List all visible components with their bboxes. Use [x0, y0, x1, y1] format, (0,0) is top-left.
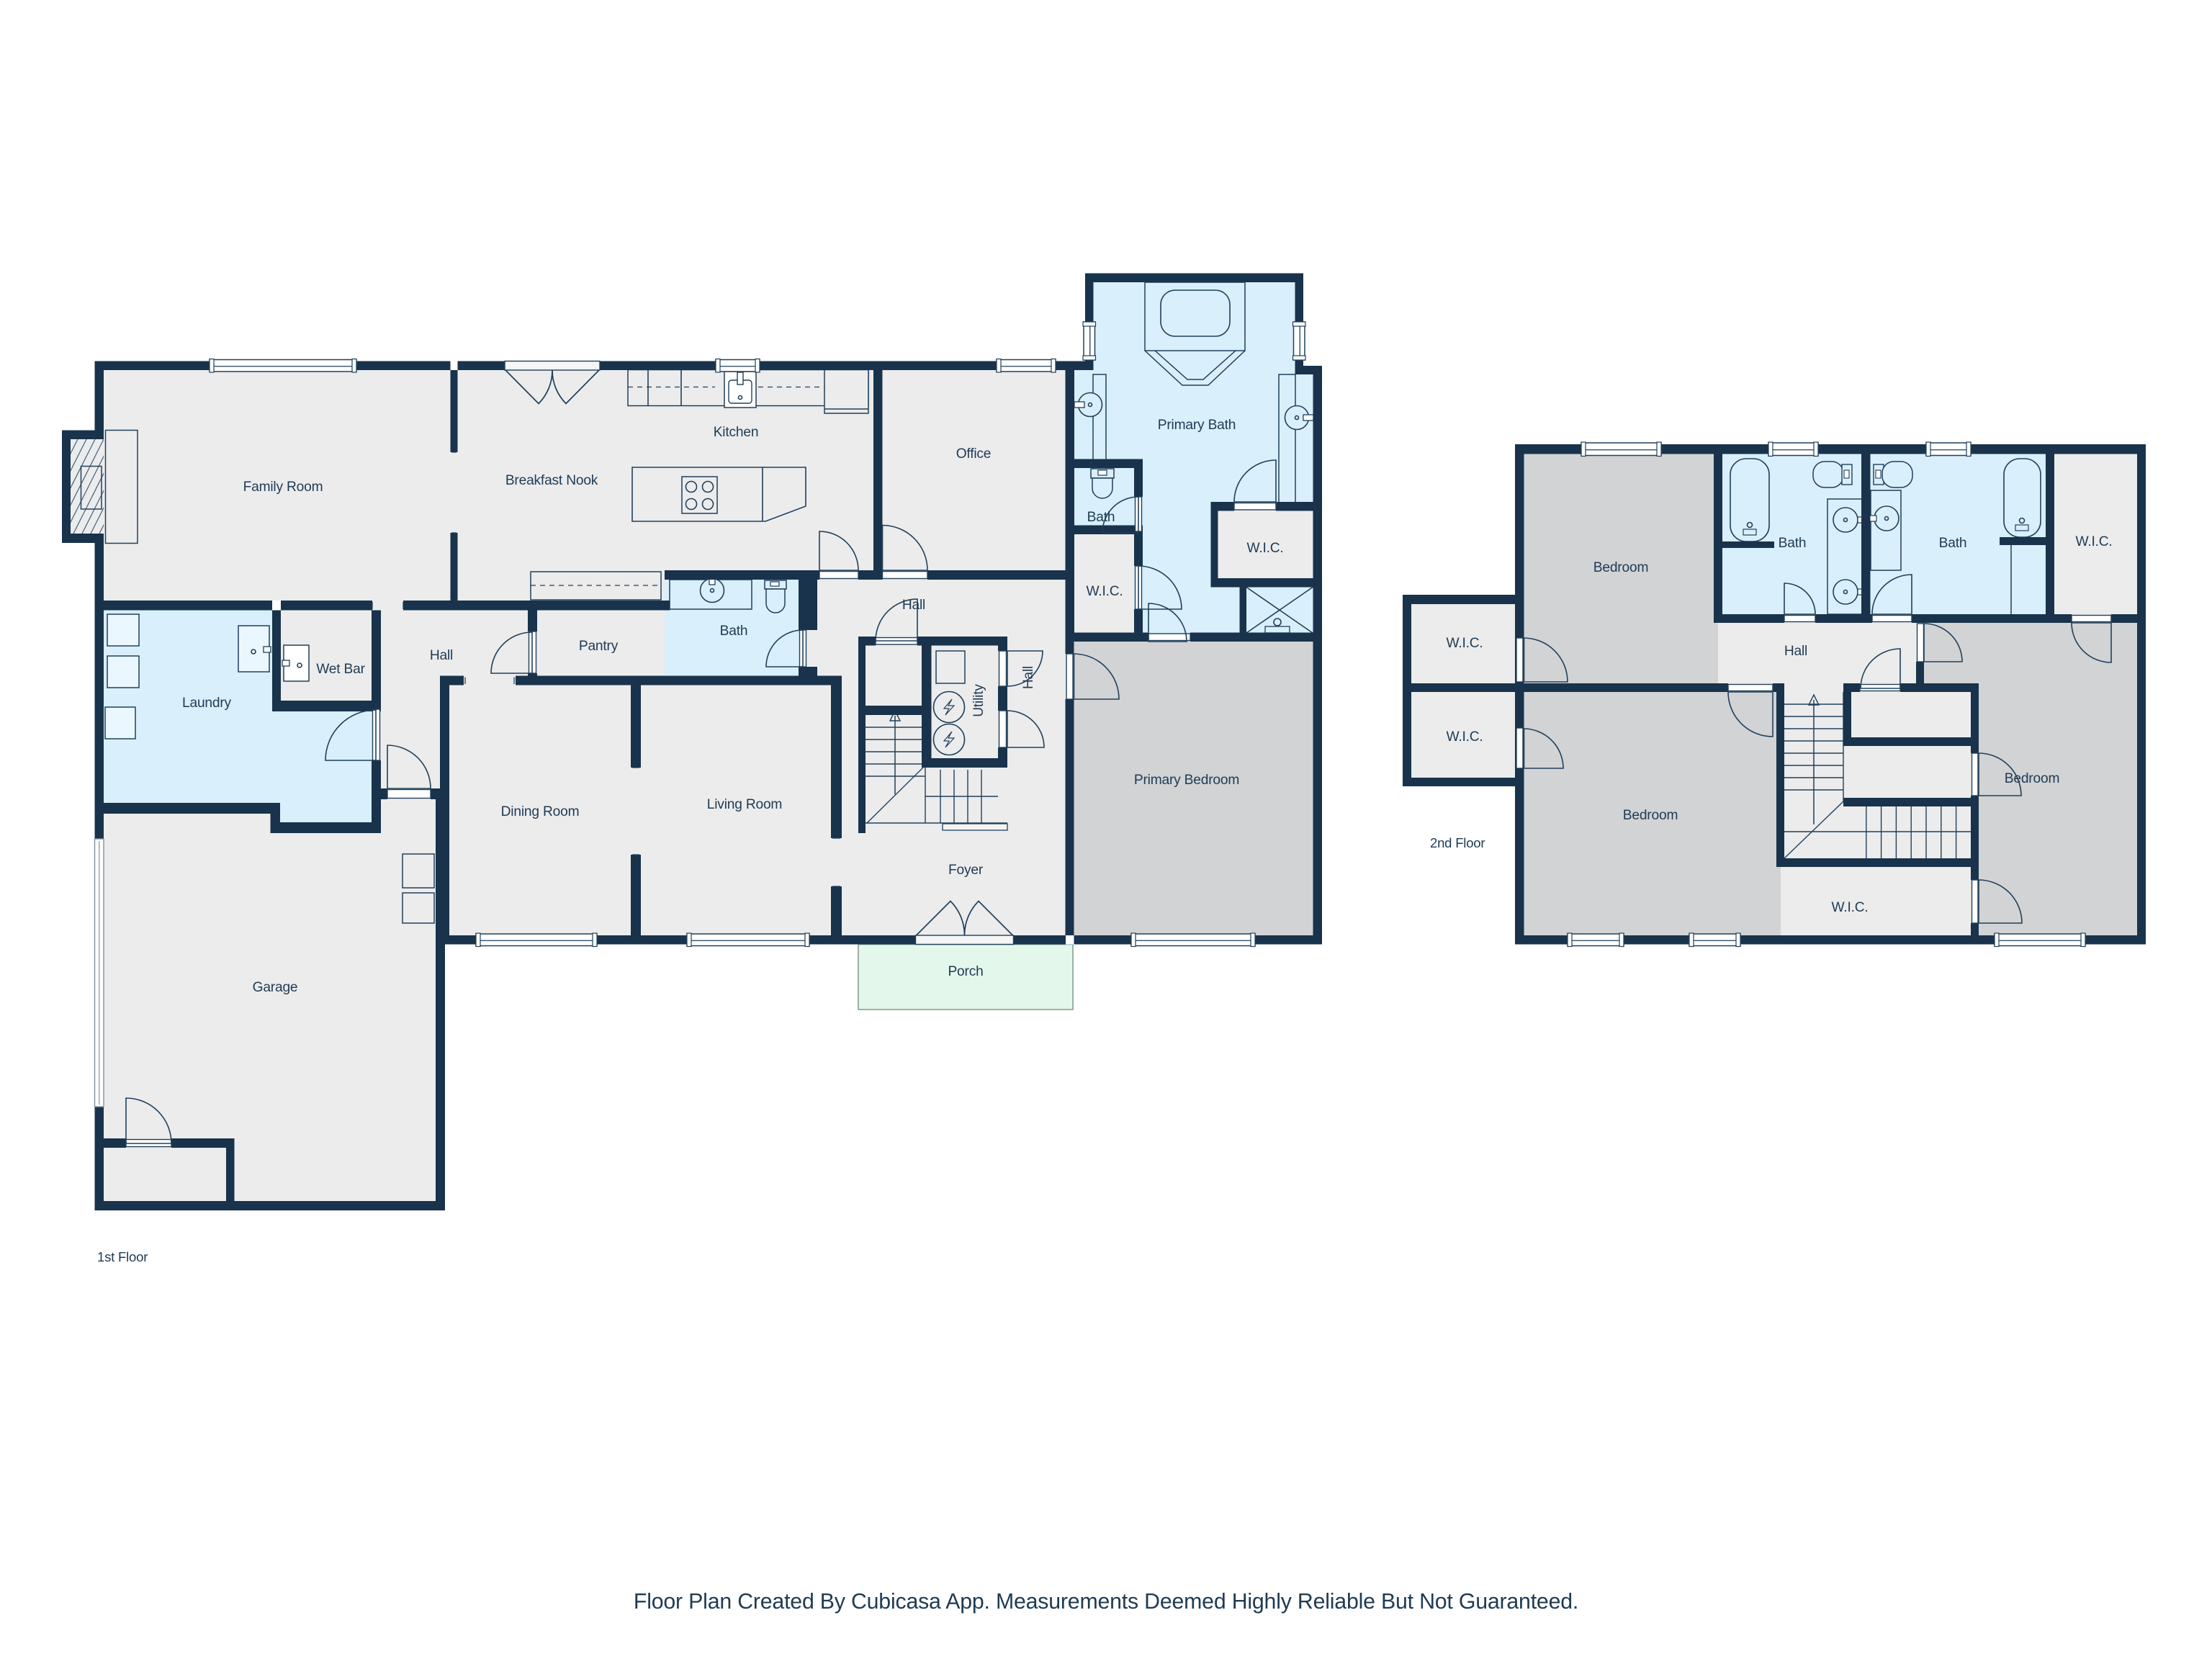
svg-text:2nd Floor: 2nd Floor	[1430, 835, 1485, 850]
svg-text:Office: Office	[956, 446, 992, 462]
svg-text:Bath: Bath	[1939, 536, 1967, 551]
svg-text:W.I.C.: W.I.C.	[1446, 729, 1483, 745]
svg-text:Breakfast Nook: Breakfast Nook	[505, 473, 598, 488]
svg-text:Foyer: Foyer	[948, 863, 984, 878]
svg-text:Floor Plan Created By Cubicasa: Floor Plan Created By Cubicasa App. Meas…	[634, 1590, 1578, 1614]
svg-text:Hall: Hall	[1021, 666, 1036, 689]
svg-text:Bedroom: Bedroom	[1623, 808, 1678, 823]
svg-text:Utility: Utility	[971, 684, 986, 717]
svg-text:Family Room: Family Room	[243, 480, 323, 495]
svg-text:W.I.C.: W.I.C.	[1086, 584, 1123, 599]
svg-text:Laundry: Laundry	[182, 696, 232, 711]
svg-text:Hall: Hall	[902, 598, 925, 613]
svg-text:Garage: Garage	[253, 980, 298, 995]
svg-text:Kitchen: Kitchen	[714, 425, 759, 440]
svg-text:Wet Bar: Wet Bar	[316, 662, 365, 677]
svg-text:Bedroom: Bedroom	[1593, 560, 1648, 575]
svg-text:Dining Room: Dining Room	[501, 804, 580, 819]
svg-text:Bath: Bath	[1087, 510, 1115, 525]
svg-text:Living Room: Living Room	[707, 797, 782, 812]
svg-text:Hall: Hall	[430, 648, 453, 663]
svg-text:1st Floor: 1st Floor	[97, 1249, 148, 1264]
svg-text:W.I.C.: W.I.C.	[2075, 534, 2112, 549]
svg-text:W.I.C.: W.I.C.	[1446, 636, 1483, 651]
svg-text:Primary Bedroom: Primary Bedroom	[1134, 773, 1239, 788]
svg-text:Porch: Porch	[948, 964, 983, 979]
svg-text:W.I.C.: W.I.C.	[1831, 900, 1868, 915]
svg-text:Bath: Bath	[1779, 536, 1807, 551]
svg-text:Pantry: Pantry	[579, 639, 619, 654]
svg-text:Bedroom: Bedroom	[2005, 771, 2059, 786]
svg-text:Primary Bath: Primary Bath	[1158, 418, 1236, 433]
svg-text:Hall: Hall	[1784, 644, 1807, 659]
svg-text:Bath: Bath	[720, 624, 748, 639]
svg-text:W.I.C.: W.I.C.	[1246, 541, 1283, 556]
